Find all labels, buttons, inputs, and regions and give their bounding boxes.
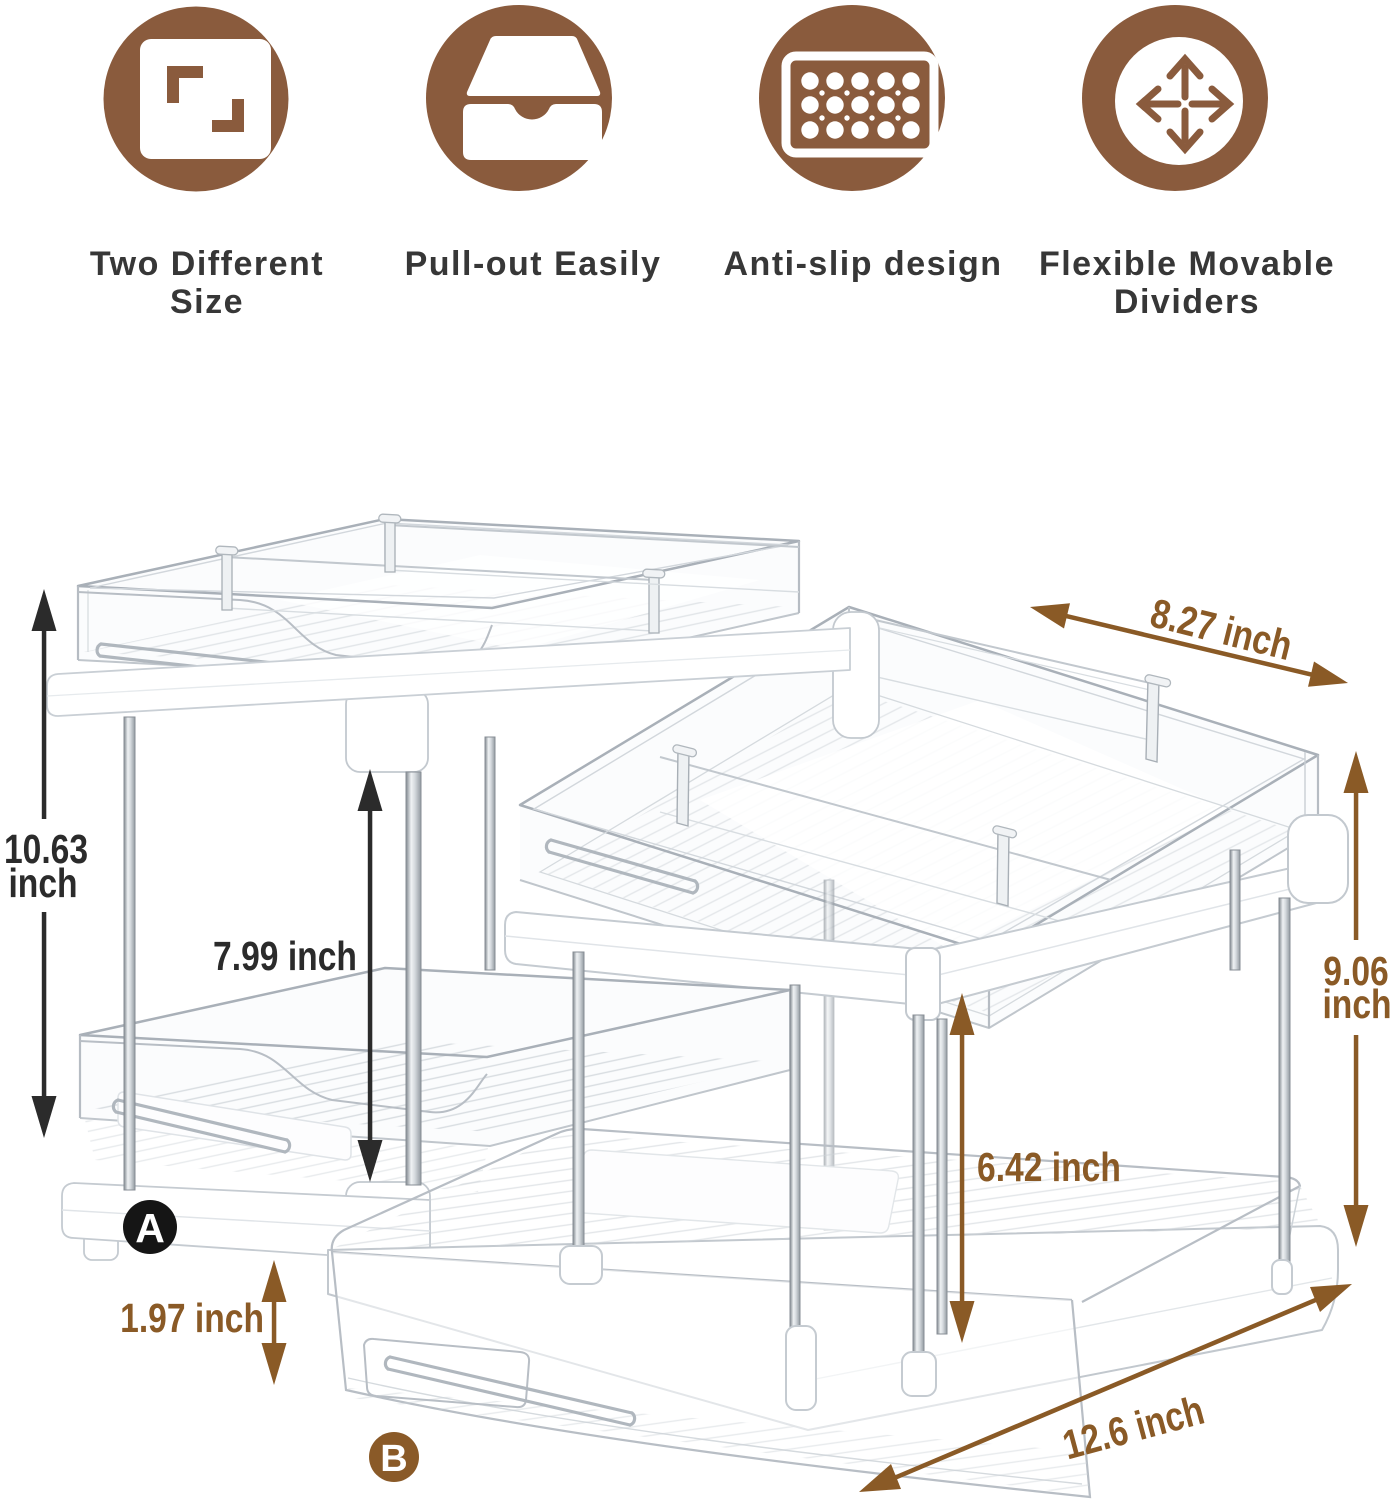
svg-text:Size: Size [170, 283, 244, 321]
svg-text:B: B [380, 1438, 407, 1480]
svg-text:8.27 inch: 8.27 inch [1146, 590, 1297, 669]
svg-text:7.99 inch: 7.99 inch [213, 933, 357, 979]
svg-text:Pull-out Easily: Pull-out Easily [405, 245, 662, 283]
svg-text:Two Different: Two Different [90, 245, 324, 283]
svg-text:6.42 inch: 6.42 inch [977, 1144, 1121, 1190]
svg-text:inch: inch [1322, 981, 1391, 1027]
svg-text:1.97 inch: 1.97 inch [120, 1295, 264, 1341]
svg-text:inch: inch [8, 860, 77, 906]
svg-text:Anti-slip design: Anti-slip design [724, 245, 1003, 283]
svg-text:Dividers: Dividers [1114, 283, 1260, 321]
svg-text:Flexible Movable: Flexible Movable [1039, 245, 1335, 283]
svg-text:A: A [135, 1205, 165, 1251]
